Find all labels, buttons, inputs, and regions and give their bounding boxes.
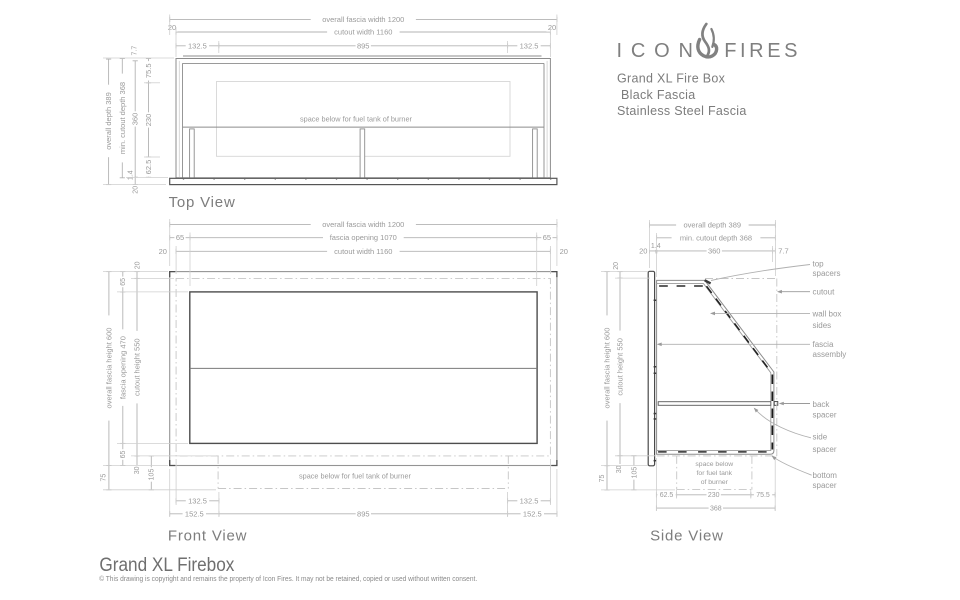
- svg-text:230: 230: [144, 114, 153, 127]
- svg-text:overall fascia width 1200: overall fascia width 1200: [322, 15, 404, 24]
- svg-text:overall fascia width 1200: overall fascia width 1200: [322, 220, 404, 229]
- svg-text:ICON: ICON: [617, 40, 702, 62]
- svg-text:cutout: cutout: [813, 288, 836, 297]
- svg-text:895: 895: [357, 509, 370, 518]
- svg-text:20: 20: [168, 23, 176, 32]
- svg-text:7.7: 7.7: [132, 46, 139, 56]
- svg-text:Grand XL Firebox: Grand XL Firebox: [99, 555, 234, 576]
- svg-text:space below: space below: [695, 461, 733, 468]
- svg-text:105: 105: [631, 467, 638, 479]
- svg-text:sides: sides: [813, 321, 832, 330]
- svg-text:fascia opening 1070: fascia opening 1070: [330, 233, 397, 242]
- svg-text:Grand XL Fire Box: Grand XL Fire Box: [617, 72, 726, 86]
- svg-text:62.5: 62.5: [660, 492, 674, 499]
- svg-text:30: 30: [134, 466, 141, 474]
- svg-text:132.5: 132.5: [188, 496, 207, 505]
- svg-text:7.7: 7.7: [778, 247, 788, 256]
- svg-text:230: 230: [708, 492, 720, 499]
- svg-text:Top View: Top View: [169, 194, 236, 211]
- svg-text:fascia: fascia: [813, 340, 834, 349]
- svg-text:Front View: Front View: [168, 527, 247, 544]
- svg-text:Stainless Steel Fascia: Stainless Steel Fascia: [617, 104, 747, 118]
- svg-text:152.5: 152.5: [185, 509, 204, 518]
- svg-text:20: 20: [159, 247, 167, 256]
- svg-text:368: 368: [710, 506, 722, 513]
- svg-text:Black Fascia: Black Fascia: [621, 88, 695, 102]
- svg-text:Side View: Side View: [650, 527, 724, 544]
- svg-text:75.5: 75.5: [756, 492, 770, 499]
- svg-text:side: side: [813, 433, 828, 442]
- svg-text:© This drawing is copyright an: © This drawing is copyright and remains …: [99, 575, 477, 583]
- svg-text:75: 75: [599, 475, 606, 483]
- svg-text:spacer: spacer: [813, 481, 837, 490]
- svg-text:20: 20: [613, 262, 620, 270]
- svg-text:for fuel tank: for fuel tank: [697, 470, 733, 477]
- svg-text:20: 20: [560, 247, 568, 256]
- svg-text:75: 75: [101, 474, 108, 482]
- svg-text:FIRES: FIRES: [724, 40, 801, 62]
- svg-text:20: 20: [639, 247, 647, 256]
- svg-text:of burner: of burner: [701, 479, 729, 486]
- svg-text:152.5: 152.5: [523, 509, 542, 518]
- svg-text:assembly: assembly: [813, 350, 847, 359]
- svg-text:360: 360: [131, 113, 140, 126]
- svg-text:30: 30: [616, 465, 623, 473]
- svg-text:spacer: spacer: [813, 410, 837, 419]
- svg-text:65: 65: [120, 278, 127, 286]
- svg-text:65: 65: [120, 451, 127, 459]
- svg-text:1.4: 1.4: [128, 170, 135, 180]
- svg-text:overall depth 389: overall depth 389: [684, 221, 742, 230]
- svg-text:spacers: spacers: [813, 269, 841, 278]
- svg-text:cutout height 550: cutout height 550: [616, 338, 625, 396]
- svg-text:top: top: [813, 259, 825, 268]
- svg-text:overall fascia height 600: overall fascia height 600: [105, 328, 114, 409]
- svg-text:cutout width 1160: cutout width 1160: [334, 28, 392, 37]
- svg-text:space below for fuel tank of b: space below for fuel tank of burner: [300, 114, 413, 123]
- svg-text:20: 20: [548, 23, 556, 32]
- svg-text:spacer: spacer: [813, 445, 837, 454]
- svg-text:360: 360: [708, 247, 721, 256]
- svg-text:space below for fuel tank of b: space below for fuel tank of burner: [299, 472, 412, 481]
- svg-text:20: 20: [133, 186, 140, 194]
- svg-text:75.5: 75.5: [144, 63, 153, 78]
- svg-text:1.4: 1.4: [651, 243, 661, 250]
- svg-text:overall depth 389: overall depth 389: [104, 92, 113, 150]
- svg-text:132.5: 132.5: [520, 496, 539, 505]
- svg-text:overall fascia height 600: overall fascia height 600: [603, 328, 612, 409]
- svg-text:105: 105: [149, 469, 156, 481]
- svg-text:132.5: 132.5: [188, 41, 207, 50]
- svg-text:min. cutout depth 368: min. cutout depth 368: [118, 82, 127, 154]
- svg-text:62.5: 62.5: [144, 160, 153, 175]
- svg-text:min. cutout depth 368: min. cutout depth 368: [680, 233, 752, 242]
- svg-text:wall box: wall box: [812, 310, 842, 319]
- svg-text:fascia opening 470: fascia opening 470: [118, 336, 127, 399]
- svg-text:65: 65: [543, 233, 551, 242]
- svg-text:back: back: [813, 400, 831, 409]
- svg-text:895: 895: [357, 41, 370, 50]
- svg-text:cutout height 550: cutout height 550: [133, 338, 142, 396]
- svg-text:132.5: 132.5: [520, 41, 539, 50]
- svg-text:20: 20: [134, 261, 141, 269]
- svg-text:cutout width 1160: cutout width 1160: [334, 247, 392, 256]
- svg-text:65: 65: [176, 233, 184, 242]
- svg-text:bottom: bottom: [813, 471, 838, 480]
